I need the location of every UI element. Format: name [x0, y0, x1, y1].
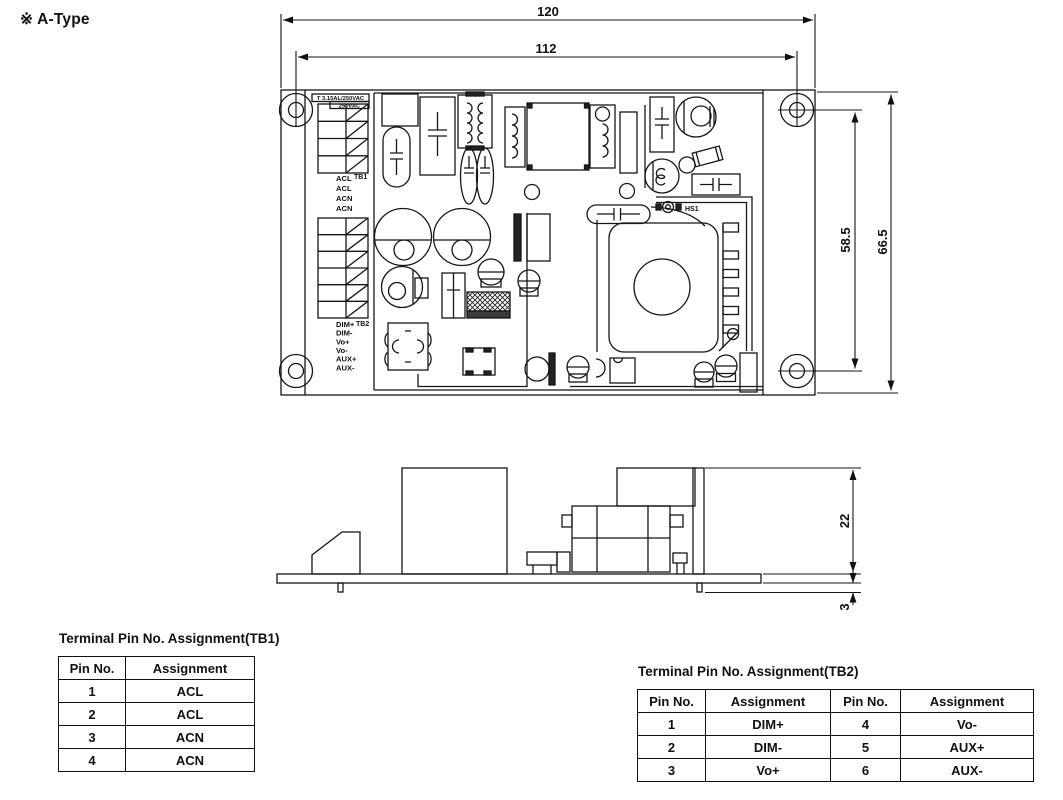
tb1-ref-label: TB1 [354, 174, 367, 181]
mounting-hole-bottom-left [280, 355, 313, 388]
board-outline [281, 90, 815, 395]
pcb-top-view [280, 90, 816, 395]
tb1-pin-label-1: ACL [336, 174, 352, 183]
transformer [597, 207, 718, 352]
dim-component-height: 22 [837, 514, 852, 528]
table-row: 1 DIM+ 4 Vo- [638, 713, 1034, 736]
dim-mounting-height: 58.5 [838, 227, 853, 252]
tb2-header-pin-1: Pin No. [638, 690, 706, 713]
terminal-block-profile [312, 532, 360, 574]
table-row: 4 ACN [59, 749, 255, 772]
tb1-pin-label-4: ACN [336, 204, 352, 213]
pin-lead-right [697, 583, 702, 592]
mechanical-drawing: 120 112 58.5 66.5 22 3 T 3.15AL/250VAC 2… [0, 0, 1063, 632]
tb1-header-assignment: Assignment [126, 657, 255, 680]
tb1-header-row: Pin No. Assignment [59, 657, 255, 680]
pin-lead-left [338, 583, 343, 592]
capacitor-profile [402, 468, 507, 574]
table-row: 3 ACN [59, 726, 255, 749]
tb2-header-row: Pin No. Assignment Pin No. Assignment [638, 690, 1034, 713]
terminal-block-tb1 [318, 104, 368, 173]
heatsink-hs1 [656, 197, 752, 351]
tb1-pin-label-2: ACL [336, 184, 352, 193]
tb2-pin-label-6: AUX- [336, 363, 355, 372]
table-row: 2 ACL [59, 703, 255, 726]
tb2-table: Pin No. Assignment Pin No. Assignment 1 … [637, 689, 1034, 782]
dim-board-width: 120 [537, 4, 559, 19]
table-row: 3 Vo+ 6 AUX- [638, 759, 1034, 782]
heatsink-label: HS1 [685, 206, 699, 213]
dim-mounting-width: 112 [536, 41, 557, 56]
tb2-pin-label-3: Vo+ [336, 337, 350, 346]
tb1-pin-label-3: ACN [336, 194, 352, 203]
pcb-side-view [277, 468, 761, 592]
terminal-block-tb2 [318, 218, 368, 318]
component-symbols [375, 92, 764, 392]
tb2-pin-label-1: DIM+ [336, 320, 355, 329]
tb2-header-pin-2: Pin No. [831, 690, 901, 713]
tb2-header-assignment-1: Assignment [706, 690, 831, 713]
tb1-table-title: Terminal Pin No. Assignment(TB1) [59, 631, 280, 646]
tb2-header-assignment-2: Assignment [901, 690, 1034, 713]
transformer-profile [527, 468, 695, 574]
dim-pin-protrusion: 3 [837, 603, 852, 610]
tb1-header-pin: Pin No. [59, 657, 126, 680]
tb2-pin-label-4: Vo- [336, 346, 348, 355]
fuse-rating-label: T 3.15AL/250VAC [317, 96, 365, 102]
tb2-table-title: Terminal Pin No. Assignment(TB2) [638, 664, 859, 679]
table-row: 2 DIM- 5 AUX+ [638, 736, 1034, 759]
datasheet-mechanical-page: ※ A-Type [0, 0, 1063, 800]
pcb-board-side [277, 574, 761, 583]
tb1-table: Pin No. Assignment 1 ACL 2 ACL 3 ACN 4 A… [58, 656, 255, 772]
dim-board-height: 66.5 [875, 229, 890, 254]
fuse-voltage-label: 250VAC [338, 103, 361, 109]
tb2-ref-label: TB2 [356, 321, 369, 328]
table-row: 1 ACL [59, 680, 255, 703]
